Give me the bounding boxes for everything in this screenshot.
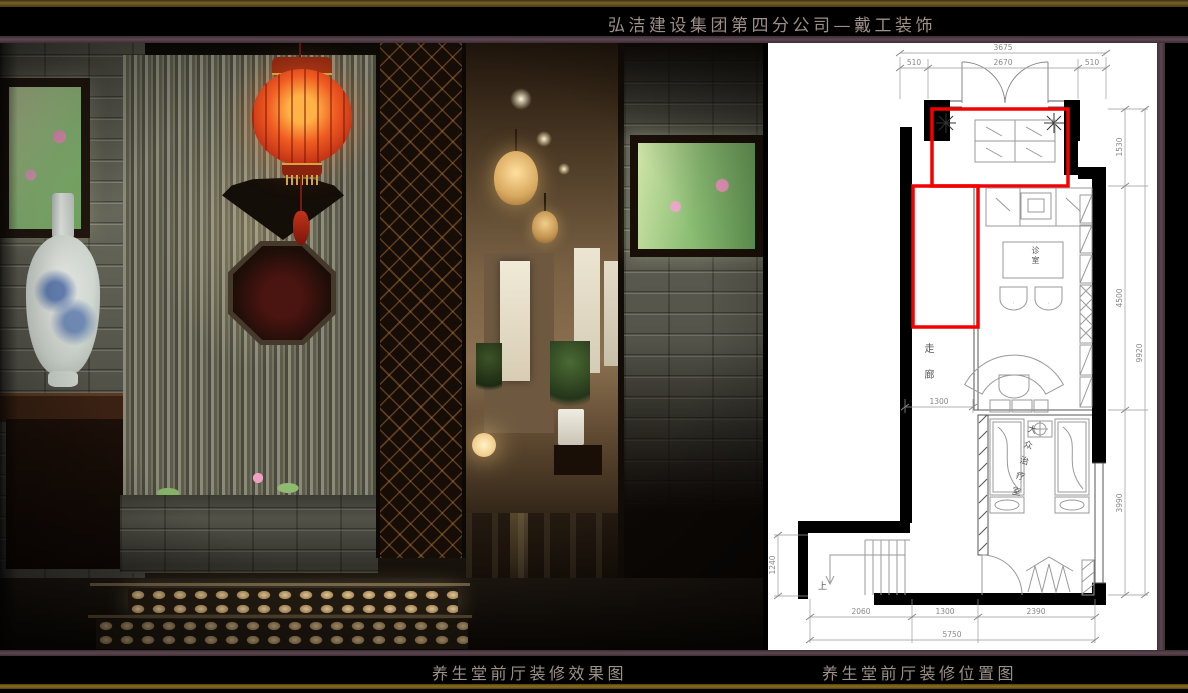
wardrobe-column [1080,195,1092,407]
plan-caption: 养生堂前厅装修位置图 [822,660,1017,684]
bottom-gold-rule [0,684,1188,689]
dim-top-total: 3675 [993,43,1012,52]
dim-top-mid: 2670 [993,58,1012,67]
plan-walls [798,100,1106,605]
rendering-caption: 养生堂前厅装修效果图 [432,660,627,684]
dim-right-3: 3990 [1115,493,1124,512]
title-band: 弘洁建设集团第四分公司—戴工装饰 [0,7,1188,36]
dim-bottom-1: 2060 [851,607,870,616]
top-gold-rule [0,0,1188,7]
top-maroon-rule [0,36,1188,43]
page-title: 弘洁建设集团第四分公司—戴工装饰 [608,11,936,36]
caption-band: 养生堂前厅装修效果图 养生堂前厅装修位置图 [0,656,1188,684]
interior-rendering [0,43,763,651]
dim-right-total: 9920 [1135,343,1144,362]
vignette [0,43,763,651]
vestibule-cabinet [975,120,1055,162]
middle-room-furniture [965,188,1092,412]
dimension-texts: 3675 510 2670 510 1530 4500 3990 9920 20… [768,43,1144,639]
desk-label: 诊室 [1030,246,1041,266]
plan-right-maroon-rule [1157,43,1165,651]
presentation-board: 弘洁建设集团第四分公司—戴工装饰 [0,0,1188,693]
plant-symbols [936,113,1064,133]
dim-bottom-3: 2390 [1026,607,1045,616]
red-highlight-outline [913,109,1068,327]
corridor-label: 走廊 [920,343,935,395]
stairs [826,540,910,595]
treatment-room-furniture [982,419,1094,595]
dim-inner-1: 1300 [929,397,948,406]
dim-top-right: 510 [1085,58,1100,67]
dim-bottom-total: 5750 [942,630,961,639]
dim-bottom-2: 1300 [935,607,954,616]
dim-left-1: 1240 [768,555,777,574]
floor-plan-drawing: 3675 510 2670 510 1530 4500 3990 9920 20… [768,43,1157,651]
stairs-up-label: 上 [818,579,827,592]
dim-right-1: 1530 [1115,137,1124,156]
floor-plan-panel: 3675 510 2670 510 1530 4500 3990 9920 20… [768,43,1157,651]
dim-top-left: 510 [907,58,922,67]
dim-right-2: 4500 [1115,288,1124,307]
